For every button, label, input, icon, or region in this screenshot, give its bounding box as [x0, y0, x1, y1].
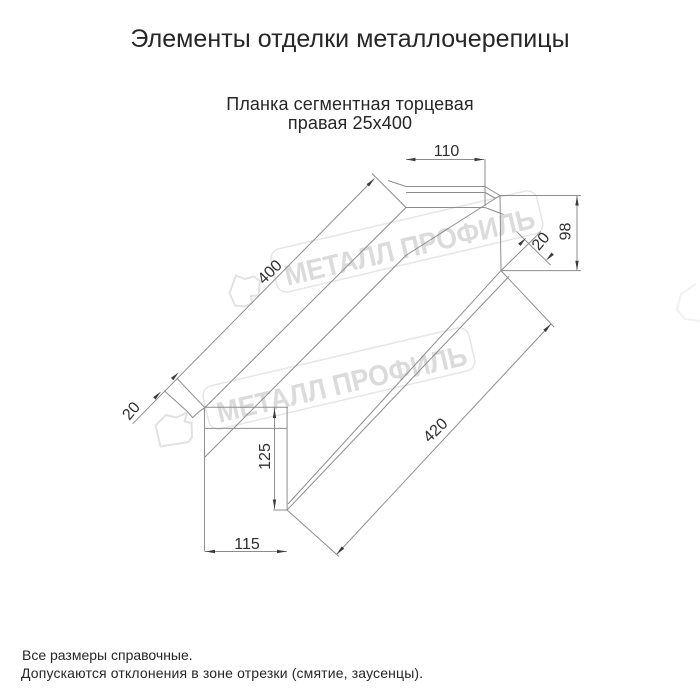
svg-text:МЕТАЛЛ ПРОФИЛЬ: МЕТАЛЛ ПРОФИЛЬ — [282, 203, 539, 293]
svg-text:115: 115 — [234, 536, 260, 553]
svg-text:20: 20 — [119, 399, 144, 424]
svg-text:125: 125 — [257, 443, 274, 470]
svg-text:420: 420 — [420, 415, 451, 446]
svg-text:110: 110 — [434, 143, 460, 160]
svg-text:98: 98 — [558, 223, 575, 241]
svg-text:МЕТАЛЛ ПРОФИЛЬ: МЕТАЛЛ ПРОФИЛЬ — [214, 340, 471, 430]
